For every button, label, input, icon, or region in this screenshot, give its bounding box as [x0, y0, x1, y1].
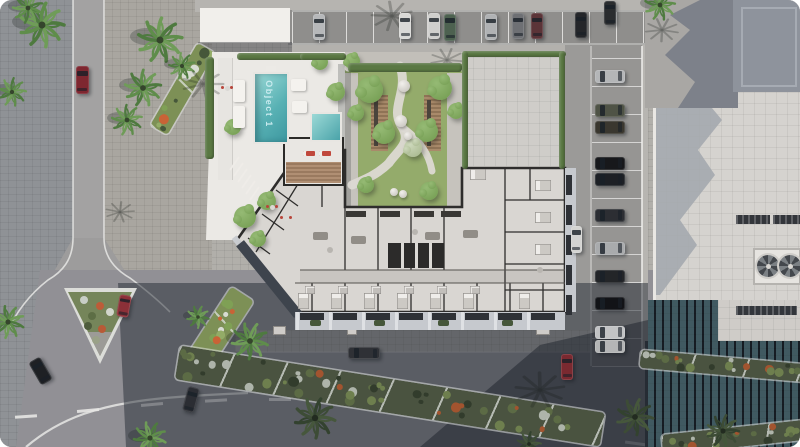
car-rear-glass — [315, 34, 324, 37]
cars-layer — [0, 0, 800, 447]
car — [485, 14, 497, 40]
car — [595, 297, 625, 310]
car-rear-glass — [487, 34, 496, 37]
car-rear-glass — [373, 349, 377, 358]
car — [28, 356, 52, 385]
car-windshield — [600, 174, 605, 185]
car — [571, 226, 582, 253]
car-rear-glass — [618, 271, 622, 281]
car-windshield — [120, 298, 130, 303]
car — [595, 121, 625, 134]
car — [348, 347, 380, 359]
car-rear-glass — [618, 122, 622, 132]
car-rear-glass — [184, 405, 193, 410]
car-rear-glass — [563, 374, 572, 377]
car-rear-glass — [618, 158, 622, 168]
car-rear-glass — [430, 33, 439, 36]
car-windshield — [562, 359, 572, 363]
car — [561, 354, 573, 380]
car — [444, 14, 456, 41]
car — [116, 294, 132, 318]
car-rear-glass — [446, 35, 455, 38]
car-windshield — [600, 243, 605, 254]
car-rear-glass — [618, 341, 622, 351]
car-windshield — [486, 19, 496, 23]
car-rear-glass — [39, 375, 49, 383]
car-windshield — [445, 18, 455, 22]
car-windshield — [600, 210, 605, 221]
masterplan-render: Object 1 — [0, 0, 800, 447]
car — [595, 209, 625, 222]
car-rear-glass — [572, 247, 580, 250]
car-windshield — [77, 71, 88, 75]
car — [595, 157, 625, 170]
car-windshield — [600, 341, 605, 352]
car — [595, 173, 625, 186]
car-windshield — [532, 18, 542, 22]
car-windshield — [605, 5, 615, 9]
car-windshield — [600, 122, 605, 133]
car-rear-glass — [618, 327, 622, 337]
car-rear-glass — [618, 243, 622, 253]
car — [595, 326, 625, 339]
car-rear-glass — [77, 88, 87, 91]
car — [604, 1, 616, 25]
car-windshield — [429, 18, 439, 22]
car — [313, 14, 325, 40]
car — [595, 70, 625, 83]
car-windshield — [31, 361, 43, 370]
car-rear-glass — [618, 105, 622, 115]
car-rear-glass — [514, 33, 523, 36]
car-windshield — [600, 158, 605, 169]
car-windshield — [600, 71, 605, 82]
car-windshield — [576, 17, 586, 21]
car-windshield — [354, 348, 359, 358]
car-windshield — [513, 18, 523, 22]
car — [531, 13, 543, 39]
car — [595, 270, 625, 283]
car-windshield — [400, 18, 410, 22]
car-windshield — [600, 105, 605, 116]
car-rear-glass — [533, 33, 542, 36]
car-windshield — [314, 19, 324, 23]
car-rear-glass — [618, 210, 622, 220]
car — [595, 242, 625, 255]
car-rear-glass — [618, 298, 622, 308]
car-windshield — [572, 230, 581, 234]
car-rear-glass — [606, 20, 615, 23]
car-rear-glass — [577, 32, 586, 35]
car-rear-glass — [118, 311, 127, 315]
car-rear-glass — [618, 71, 622, 81]
car — [182, 385, 200, 412]
car-windshield — [187, 390, 198, 396]
car — [595, 340, 625, 353]
car — [76, 66, 89, 94]
car — [428, 13, 440, 39]
car — [575, 12, 587, 38]
car — [512, 13, 524, 39]
car-windshield — [600, 271, 605, 282]
car — [595, 104, 625, 117]
car-rear-glass — [618, 174, 622, 184]
car-windshield — [600, 298, 605, 309]
car — [399, 13, 411, 39]
car-rear-glass — [401, 33, 410, 36]
car-windshield — [600, 327, 605, 338]
